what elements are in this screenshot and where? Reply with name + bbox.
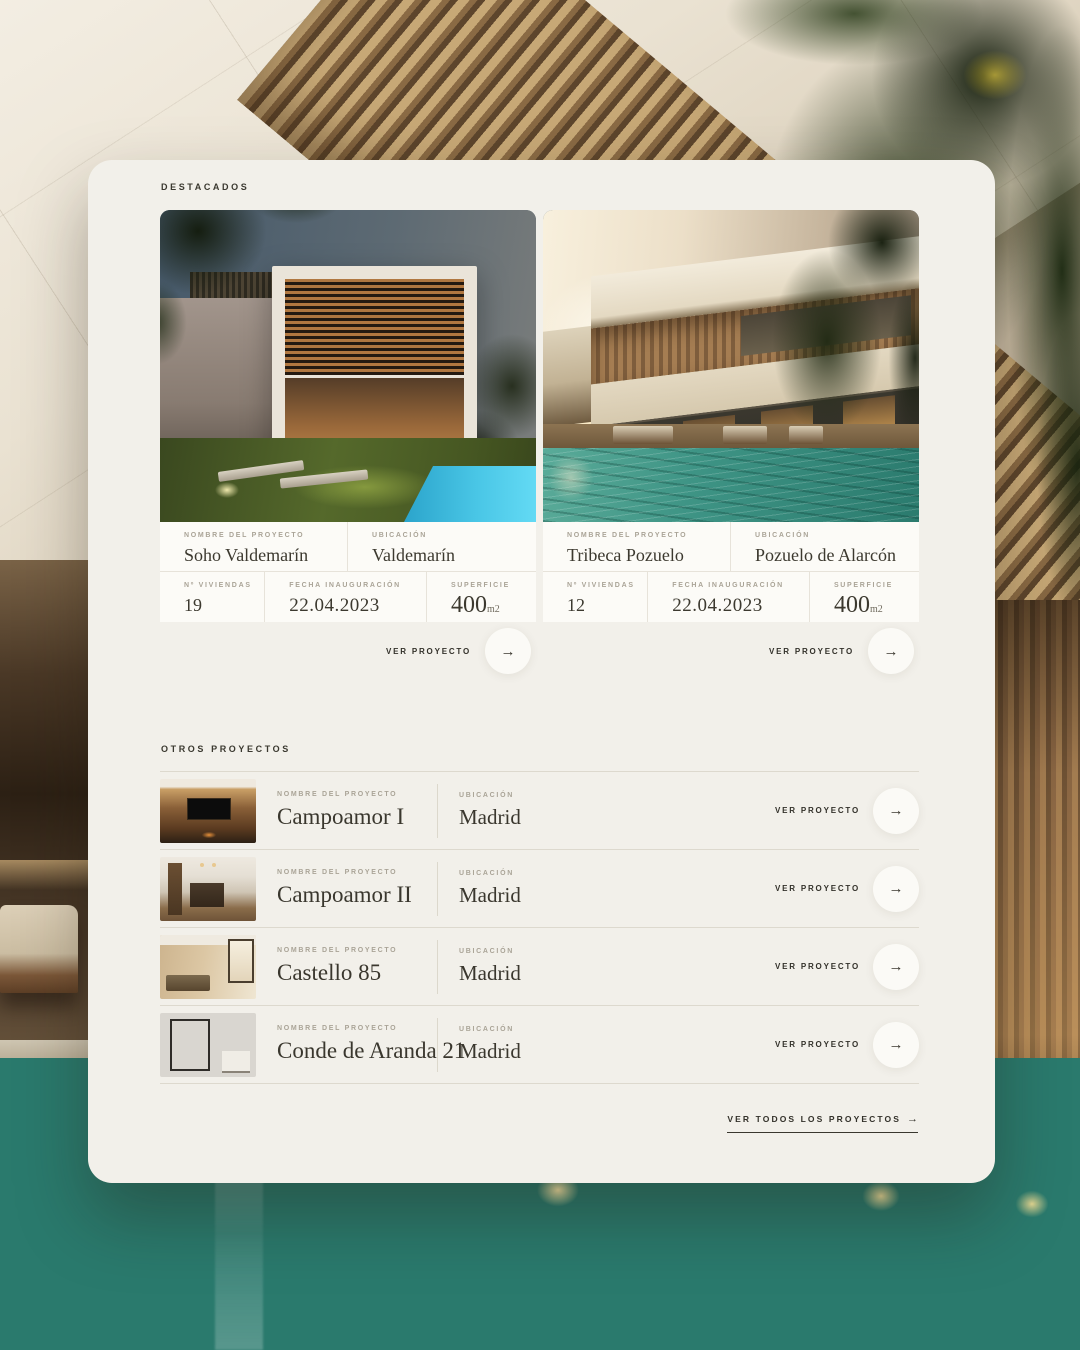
project-row-campoamor-1[interactable]: NOMBRE DEL PROYECTO Campoamor I UBICACIÓ… — [160, 772, 919, 850]
area-number: 400 — [834, 592, 870, 618]
date-value: 22.04.2023 — [672, 595, 803, 617]
project-name-cell: NOMBRE DEL PROYECTO Tribeca Pozuelo — [543, 522, 731, 571]
card-stats-row: Nº VIVIENDAS 12 FECHA INAUGURACIÓN 22.04… — [543, 572, 919, 622]
arrow-right-icon: → — [907, 1113, 918, 1125]
date-label: FECHA INAUGURACIÓN — [672, 582, 803, 589]
scene-garden-lamp — [212, 480, 242, 500]
row-cta: VER PROYECTO → — [775, 944, 919, 990]
project-name-cell: NOMBRE DEL PROYECTO Soho Valdemarín — [160, 522, 348, 571]
pool-light-glow — [1010, 1186, 1054, 1222]
area-number: 400 — [451, 592, 487, 618]
projects-panel: DESTACADOS — [88, 160, 995, 1183]
row-name-block: NOMBRE DEL PROYECTO Campoamor II — [277, 869, 437, 908]
thumb-sofa — [166, 975, 210, 991]
project-location: Pozuelo de Alarcón — [755, 545, 913, 566]
area-value: 400m2 — [834, 595, 913, 620]
scene-house-louvers — [285, 279, 464, 375]
row-cta: VER PROYECTO → — [775, 1022, 919, 1068]
thumb-pendant-lamp — [200, 863, 204, 867]
row-location-block: UBICACIÓN Madrid — [459, 948, 639, 986]
location-label: UBICACIÓN — [459, 870, 639, 877]
location-label: UBICACIÓN — [459, 948, 639, 955]
arrow-right-icon: → — [889, 958, 904, 975]
thumb-shower-glass — [170, 1019, 210, 1071]
card-cta-row: VER PROYECTO → — [160, 622, 536, 680]
area-cell: SUPERFICIE 400m2 — [810, 572, 919, 622]
thumb-window — [230, 941, 252, 981]
area-unit: m2 — [870, 604, 883, 615]
vertical-divider — [437, 784, 438, 838]
project-name: Soho Valdemarín — [184, 545, 341, 566]
arrow-right-icon: → — [501, 643, 516, 660]
project-name: Tribeca Pozuelo — [567, 545, 724, 566]
view-project-button[interactable]: → — [873, 944, 919, 990]
project-location: Madrid — [459, 883, 639, 908]
view-project-button[interactable]: → — [485, 628, 531, 674]
view-project-label[interactable]: VER PROYECTO — [775, 1040, 860, 1049]
name-label: NOMBRE DEL PROYECTO — [277, 1025, 437, 1032]
card-name-location-row: NOMBRE DEL PROYECTO Soho Valdemarín UBIC… — [160, 522, 536, 572]
view-project-button[interactable]: → — [873, 788, 919, 834]
view-all-label: VER TODOS LOS PROYECTOS — [727, 1114, 901, 1124]
date-value: 22.04.2023 — [289, 595, 420, 617]
row-name-block: NOMBRE DEL PROYECTO Castello 85 — [277, 947, 437, 986]
scene-outdoor-sofa — [613, 426, 673, 444]
card-cta-row: VER PROYECTO → — [543, 622, 919, 680]
date-cell: FECHA INAUGURACIÓN 22.04.2023 — [648, 572, 810, 622]
project-thumbnail — [160, 779, 256, 843]
row-name-block: NOMBRE DEL PROYECTO Campoamor I — [277, 791, 437, 830]
other-projects-list: NOMBRE DEL PROYECTO Campoamor I UBICACIÓ… — [160, 771, 919, 1084]
scene-pool-reflection — [543, 448, 683, 522]
background-armchair — [0, 905, 78, 993]
thumb-tv — [188, 799, 230, 819]
card-stats-row: Nº VIVIENDAS 19 FECHA INAUGURACIÓN 22.04… — [160, 572, 536, 622]
name-label: NOMBRE DEL PROYECTO — [567, 532, 724, 539]
units-cell: Nº VIVIENDAS 12 — [543, 572, 648, 622]
project-row-campoamor-2[interactable]: NOMBRE DEL PROYECTO Campoamor II UBICACI… — [160, 850, 919, 928]
project-name: Campoamor II — [277, 882, 437, 908]
area-label: SUPERFICIE — [451, 582, 530, 589]
project-photo-dusk-villa — [160, 210, 536, 522]
thumb-wood-column — [168, 863, 182, 915]
units-value: 19 — [184, 595, 258, 616]
vertical-divider — [437, 862, 438, 916]
area-value: 400m2 — [451, 595, 530, 620]
page: DESTACADOS — [0, 0, 1080, 1350]
units-label: Nº VIVIENDAS — [567, 582, 641, 589]
location-label: UBICACIÓN — [372, 532, 530, 539]
card-name-location-row: NOMBRE DEL PROYECTO Tribeca Pozuelo UBIC… — [543, 522, 919, 572]
featured-card-tribeca-pozuelo[interactable]: NOMBRE DEL PROYECTO Tribeca Pozuelo UBIC… — [543, 210, 919, 680]
thumb-fireplace-glow — [200, 831, 218, 839]
area-unit: m2 — [487, 604, 500, 615]
background-left-wall — [0, 560, 92, 1080]
view-project-button[interactable]: → — [873, 866, 919, 912]
featured-cards: NOMBRE DEL PROYECTO Soho Valdemarín UBIC… — [160, 210, 919, 680]
view-project-label[interactable]: VER PROYECTO — [769, 647, 854, 656]
view-project-label[interactable]: VER PROYECTO — [386, 647, 471, 656]
featured-section-heading: DESTACADOS — [161, 182, 249, 192]
project-location: Valdemarín — [372, 545, 530, 566]
project-name: Conde de Aranda 21 — [277, 1038, 437, 1064]
project-location: Madrid — [459, 1039, 639, 1064]
arrow-right-icon: → — [889, 880, 904, 897]
view-project-label[interactable]: VER PROYECTO — [775, 884, 860, 893]
units-value: 12 — [567, 595, 641, 616]
units-cell: Nº VIVIENDAS 19 — [160, 572, 265, 622]
area-label: SUPERFICIE — [834, 582, 913, 589]
project-thumbnail — [160, 935, 256, 999]
scene-outdoor-chair — [789, 426, 823, 444]
view-project-label[interactable]: VER PROYECTO — [775, 806, 860, 815]
location-label: UBICACIÓN — [755, 532, 913, 539]
project-location: Madrid — [459, 961, 639, 986]
project-row-castello-85[interactable]: NOMBRE DEL PROYECTO Castello 85 UBICACIÓ… — [160, 928, 919, 1006]
name-label: NOMBRE DEL PROYECTO — [184, 532, 341, 539]
name-label: NOMBRE DEL PROYECTO — [277, 947, 437, 954]
row-location-block: UBICACIÓN Madrid — [459, 792, 639, 830]
project-thumbnail — [160, 857, 256, 921]
row-name-block: NOMBRE DEL PROYECTO Conde de Aranda 21 — [277, 1025, 437, 1064]
arrow-right-icon: → — [884, 643, 899, 660]
project-location-cell: UBICACIÓN Pozuelo de Alarcón — [731, 522, 919, 571]
arrow-right-icon: → — [889, 802, 904, 819]
view-project-button[interactable]: → — [873, 1022, 919, 1068]
date-cell: FECHA INAUGURACIÓN 22.04.2023 — [265, 572, 427, 622]
background-left-wall-glow — [0, 860, 92, 890]
project-name: Campoamor I — [277, 804, 437, 830]
thumb-kitchen-island — [190, 883, 224, 907]
featured-card-soho-valdemarin[interactable]: NOMBRE DEL PROYECTO Soho Valdemarín UBIC… — [160, 210, 536, 680]
vertical-divider — [437, 940, 438, 994]
project-location: Madrid — [459, 805, 639, 830]
location-label: UBICACIÓN — [459, 1026, 639, 1033]
scene-outdoor-chair — [723, 426, 767, 444]
project-photo-sunset-villa — [543, 210, 919, 522]
date-label: FECHA INAUGURACIÓN — [289, 582, 420, 589]
area-cell: SUPERFICIE 400m2 — [427, 572, 536, 622]
location-label: UBICACIÓN — [459, 792, 639, 799]
vertical-divider — [437, 1018, 438, 1072]
name-label: NOMBRE DEL PROYECTO — [277, 869, 437, 876]
view-all-projects-link[interactable]: VER TODOS LOS PROYECTOS → — [727, 1113, 918, 1133]
units-label: Nº VIVIENDAS — [184, 582, 258, 589]
row-location-block: UBICACIÓN Madrid — [459, 1026, 639, 1064]
project-row-conde-de-aranda-21[interactable]: NOMBRE DEL PROYECTO Conde de Aranda 21 U… — [160, 1006, 919, 1084]
row-location-block: UBICACIÓN Madrid — [459, 870, 639, 908]
row-cta: VER PROYECTO → — [775, 866, 919, 912]
name-label: NOMBRE DEL PROYECTO — [277, 791, 437, 798]
arrow-right-icon: → — [889, 1036, 904, 1053]
others-section-heading: OTROS PROYECTOS — [161, 744, 291, 754]
thumb-vanity — [222, 1051, 250, 1071]
view-project-button[interactable]: → — [868, 628, 914, 674]
background-tree-highlight — [950, 40, 1040, 110]
row-cta: VER PROYECTO → — [775, 788, 919, 834]
project-location-cell: UBICACIÓN Valdemarín — [348, 522, 536, 571]
project-thumbnail — [160, 1013, 256, 1077]
view-project-label[interactable]: VER PROYECTO — [775, 962, 860, 971]
project-name: Castello 85 — [277, 960, 437, 986]
